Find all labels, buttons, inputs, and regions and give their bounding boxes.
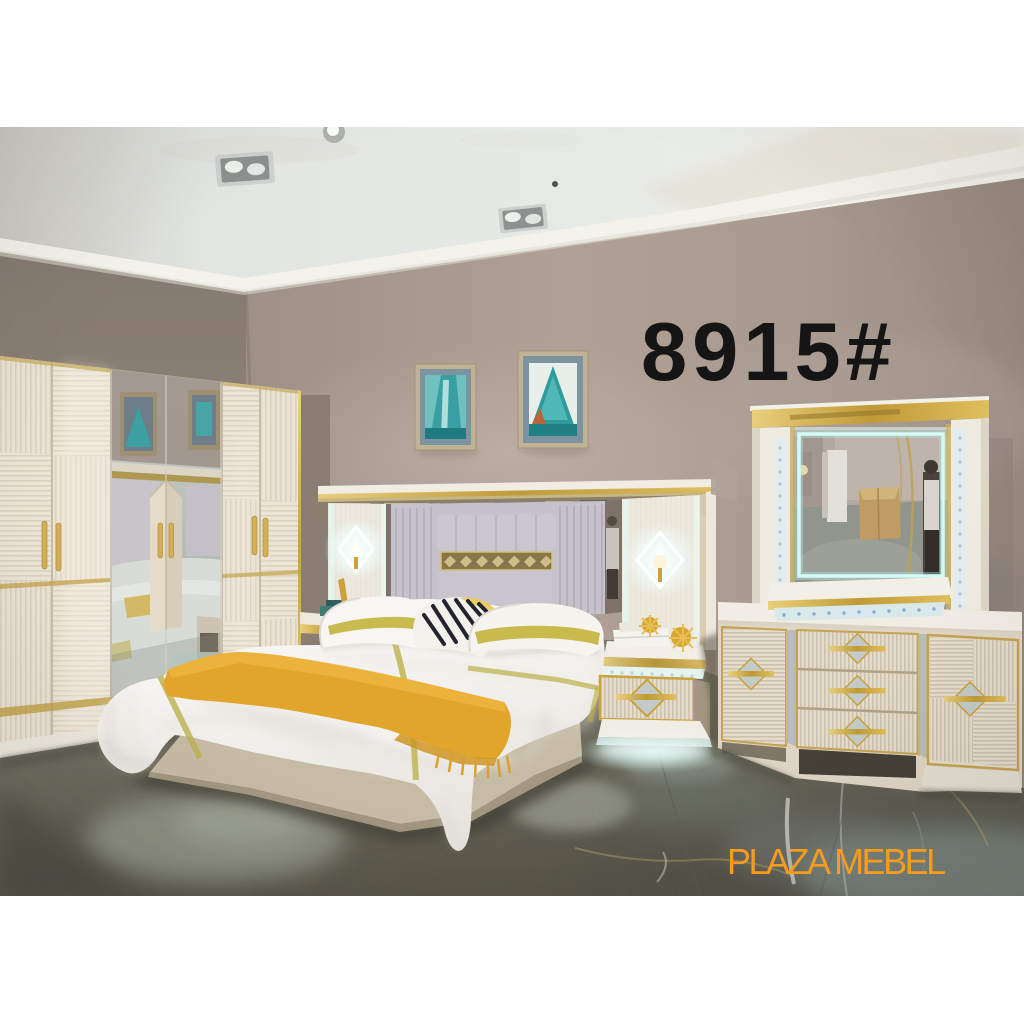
svg-text:PLAZA MEBEL: PLAZA MEBEL — [727, 841, 945, 882]
